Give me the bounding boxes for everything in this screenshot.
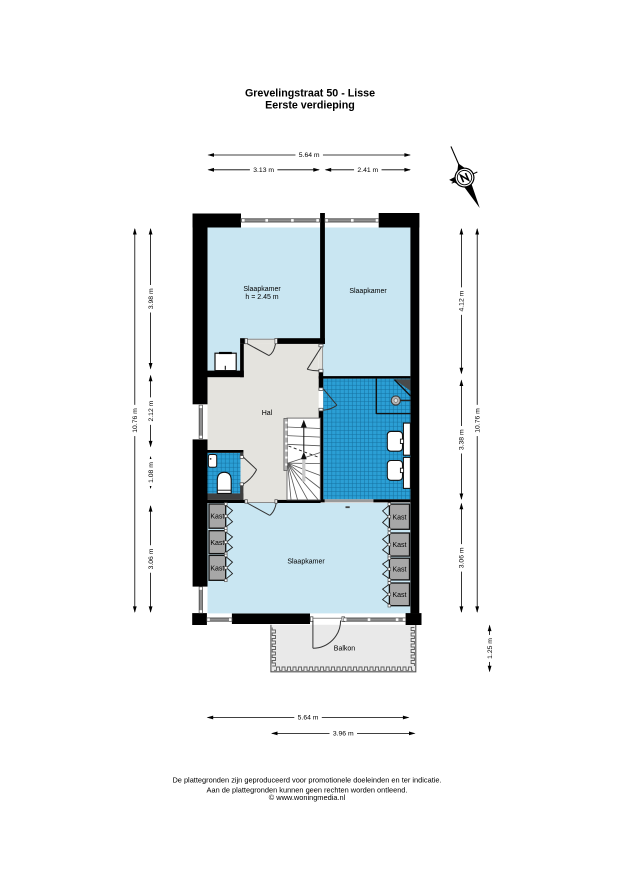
svg-text:5.64 m: 5.64 m [299, 152, 320, 159]
svg-text:Kast: Kast [210, 565, 224, 572]
svg-text:Eerste verdieping: Eerste verdieping [265, 99, 355, 111]
svg-text:3.06 m: 3.06 m [459, 547, 466, 568]
svg-text:Slaapkamer: Slaapkamer [287, 559, 325, 566]
svg-text:10.76 m: 10.76 m [132, 408, 139, 433]
svg-text:Hal: Hal [262, 410, 273, 417]
svg-text:3.98 m: 3.98 m [148, 288, 155, 309]
svg-text:Kast: Kast [392, 567, 406, 574]
svg-text:Slaapkamer: Slaapkamer [243, 286, 281, 293]
svg-text:© www.woningmedia.nl: © www.woningmedia.nl [269, 793, 346, 802]
svg-text:Grevelingstraat 50 - Lisse: Grevelingstraat 50 - Lisse [245, 88, 375, 100]
svg-text:2.41 m: 2.41 m [357, 167, 378, 174]
svg-text:3.13 m: 3.13 m [253, 167, 274, 174]
svg-text:Slaapkamer: Slaapkamer [349, 288, 387, 295]
svg-text:10.76 m: 10.76 m [474, 408, 481, 433]
svg-text:3.38 m: 3.38 m [459, 429, 466, 450]
svg-text:Kast: Kast [392, 514, 406, 521]
svg-text:Kast: Kast [392, 542, 406, 549]
svg-text:Kast: Kast [392, 592, 406, 599]
svg-text:1.25 m: 1.25 m [487, 638, 494, 659]
svg-text:2.12 m: 2.12 m [148, 400, 155, 421]
svg-text:Kast: Kast [210, 540, 224, 547]
svg-text:3.06 m: 3.06 m [148, 548, 155, 569]
svg-text:3.96 m: 3.96 m [333, 731, 354, 738]
svg-text:Balkon: Balkon [334, 645, 356, 652]
svg-text:5.64 m: 5.64 m [298, 715, 319, 722]
svg-text:Kast: Kast [210, 514, 224, 521]
svg-text:h = 2.45 m: h = 2.45 m [245, 294, 278, 301]
svg-text:1.08 m: 1.08 m [148, 462, 155, 483]
svg-text:De plattegronden zijn geproduc: De plattegronden zijn geproduceerd voor … [172, 776, 441, 785]
svg-text:4.12 m: 4.12 m [459, 290, 466, 311]
